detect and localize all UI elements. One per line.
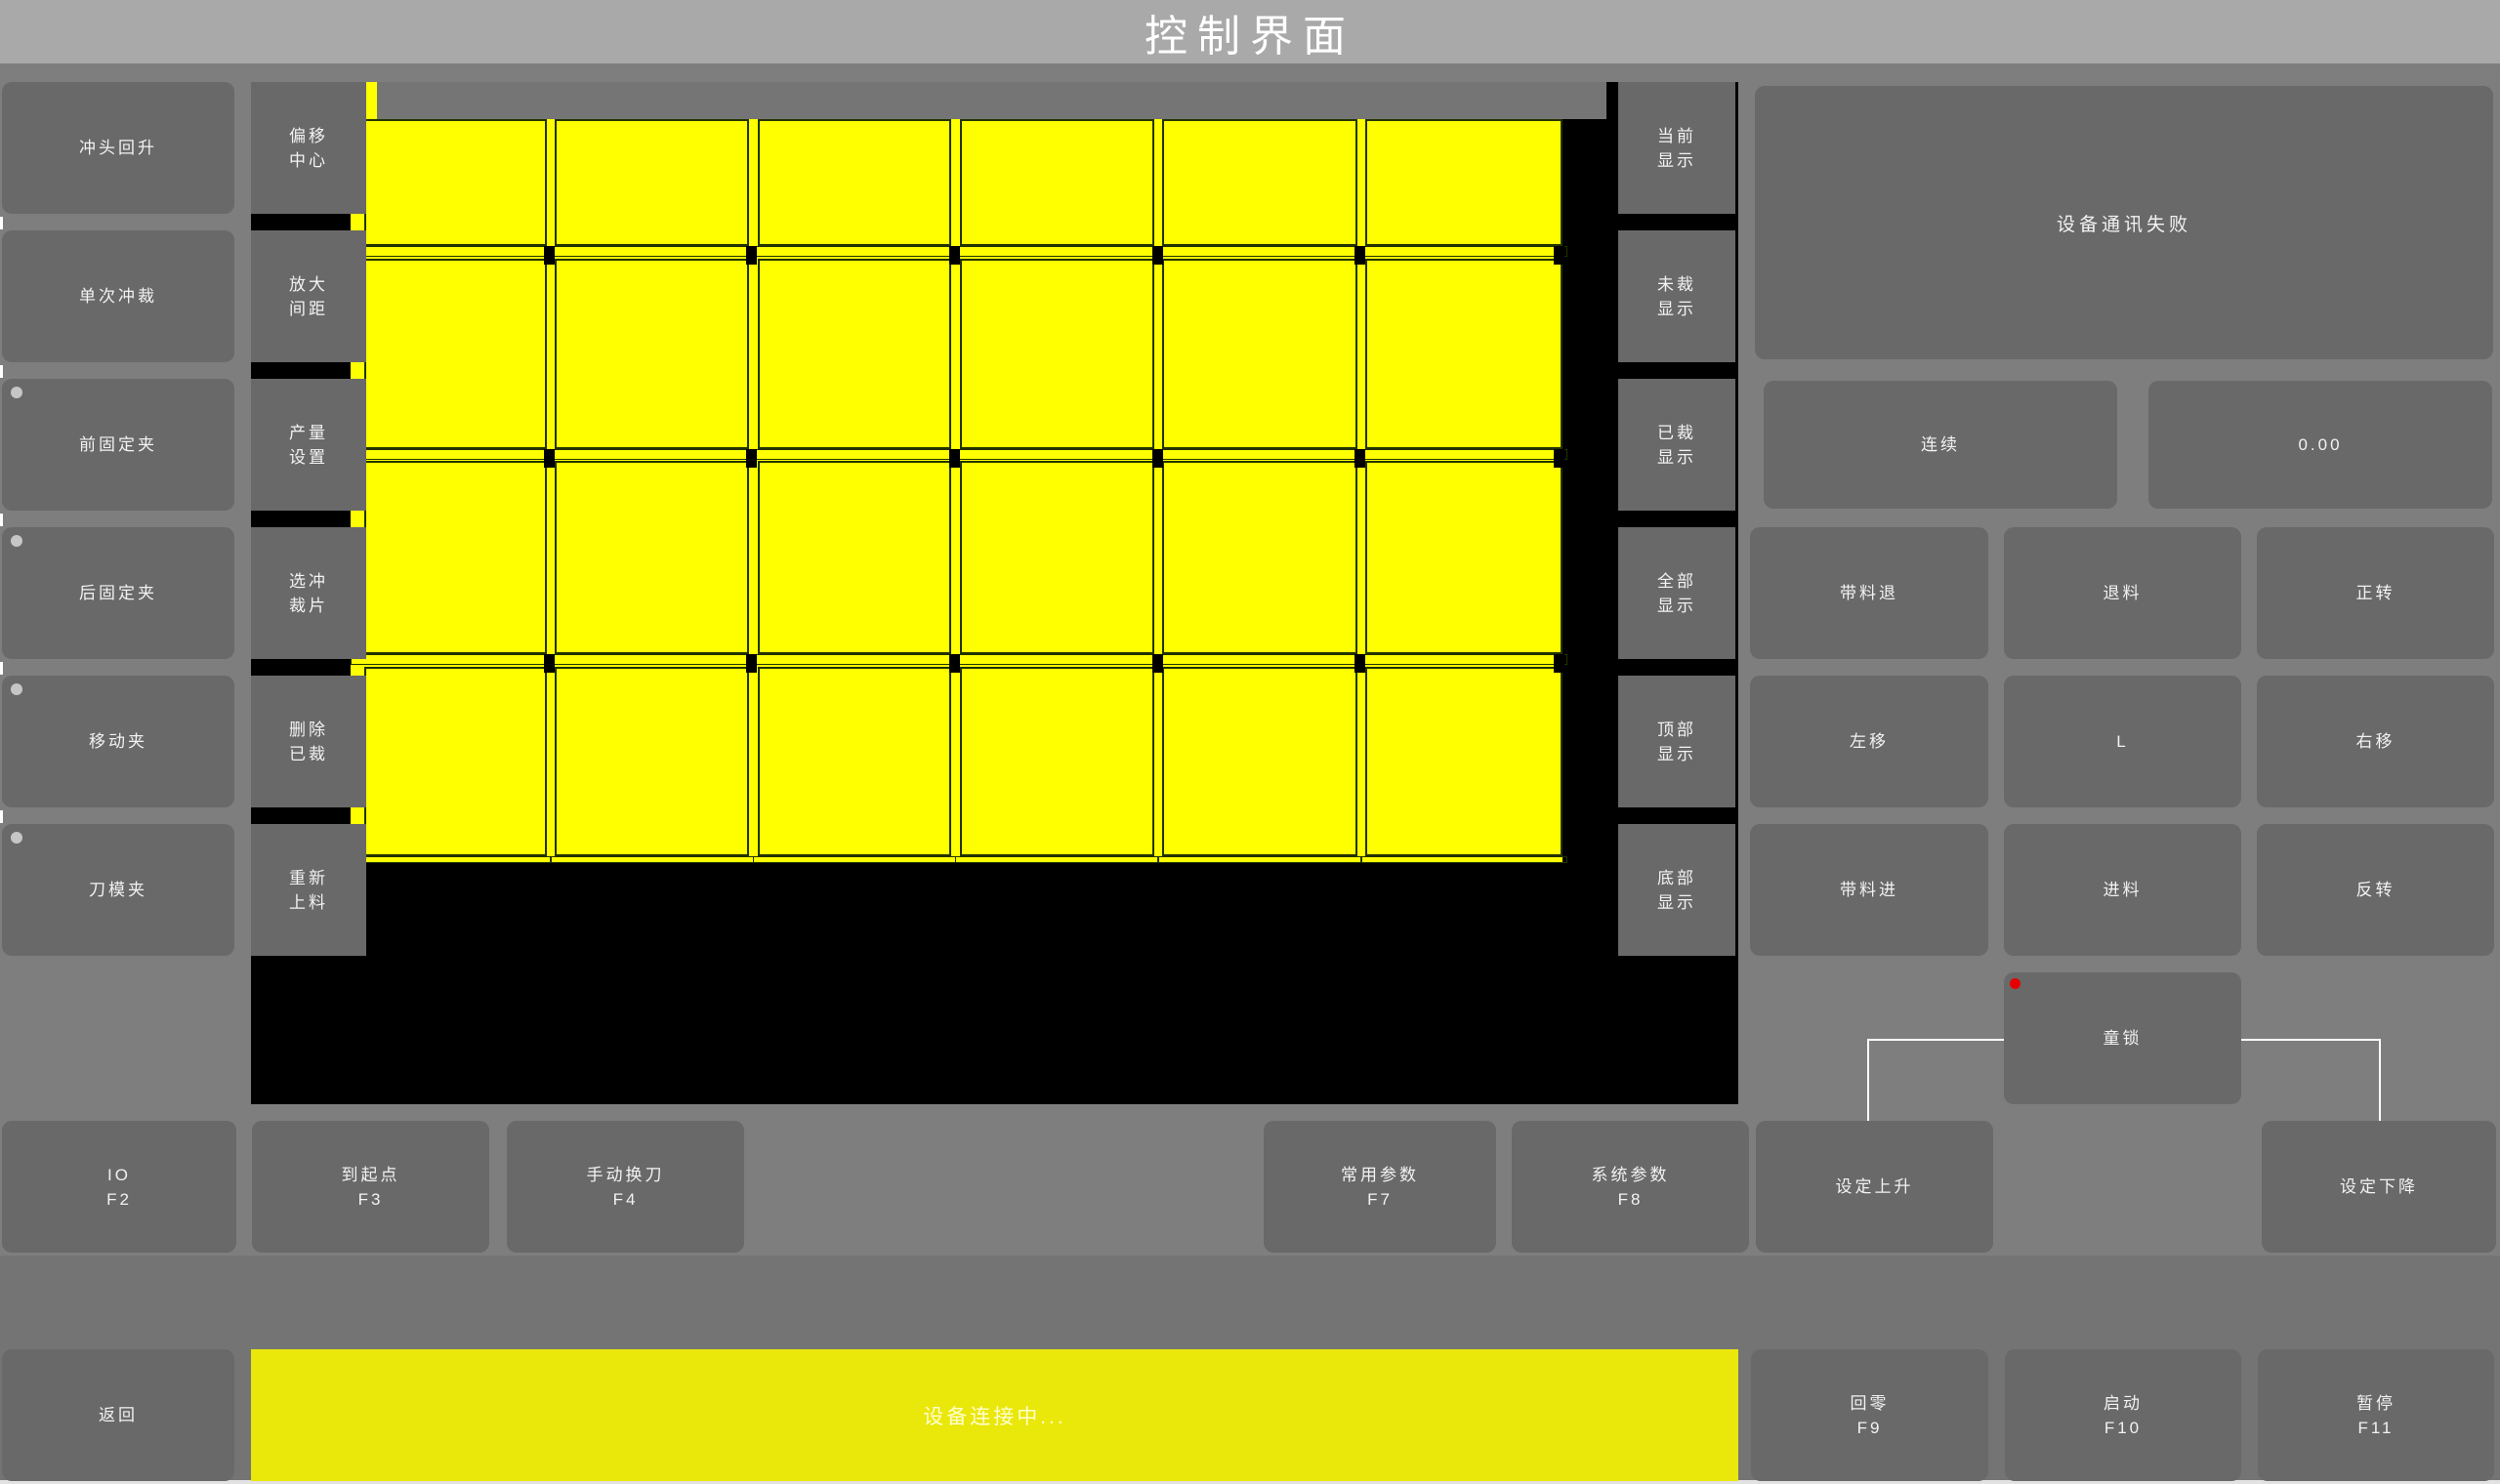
junction-notch bbox=[544, 246, 555, 265]
cut-piece bbox=[758, 461, 951, 654]
button-label: 设置 bbox=[289, 445, 328, 470]
button-label: L bbox=[2116, 729, 2128, 754]
button-label: 设定上升 bbox=[1836, 1175, 1914, 1199]
button-label: 常用参数 bbox=[1341, 1163, 1419, 1187]
delete-cut-button[interactable]: 删除 已裁 bbox=[251, 676, 366, 807]
red-state-dot-icon bbox=[2010, 978, 2021, 989]
cut-piece bbox=[1162, 259, 1357, 449]
divider-strip bbox=[550, 856, 754, 863]
divider-strip bbox=[955, 246, 1159, 257]
divider-strip bbox=[1157, 654, 1362, 665]
junction-notch bbox=[1354, 654, 1365, 673]
state-dot-icon bbox=[11, 832, 22, 844]
divider-strip bbox=[753, 856, 956, 863]
button-label: 当前 bbox=[1657, 124, 1696, 148]
single-punch-button[interactable]: 单次冲裁 bbox=[2, 230, 234, 362]
cut-piece bbox=[960, 119, 1154, 246]
button-label: 设定下降 bbox=[2340, 1175, 2418, 1199]
go-origin-f3-button[interactable]: 到起点 F3 bbox=[252, 1121, 489, 1253]
junction-notch bbox=[1554, 654, 1564, 673]
button-label: 童锁 bbox=[2104, 1026, 2143, 1051]
divider-strip bbox=[550, 654, 754, 665]
common-params-f7-button[interactable]: 常用参数 F7 bbox=[1264, 1121, 1496, 1253]
status-text: 设备连接中... bbox=[923, 1401, 1066, 1430]
divider-strip bbox=[1360, 654, 1567, 665]
button-label: 显示 bbox=[1657, 445, 1696, 470]
button-label: 中心 bbox=[289, 148, 328, 173]
junction-notch bbox=[746, 654, 757, 673]
edge-tick bbox=[0, 217, 3, 229]
button-label: 反转 bbox=[2356, 878, 2396, 902]
control-interface-screen: 控制界面 冲头回升 单次冲裁 前固定夹 后固定夹 移动夹 刀模夹 偏移 中心 放… bbox=[0, 0, 2500, 1484]
divider-strip bbox=[351, 449, 552, 460]
divider-strip bbox=[753, 449, 956, 460]
rear-clamp-button[interactable]: 后固定夹 bbox=[2, 527, 234, 659]
button-label: 显示 bbox=[1657, 594, 1696, 618]
show-cut-button[interactable]: 已裁 显示 bbox=[1618, 379, 1735, 511]
divider-strip bbox=[351, 856, 552, 863]
cut-piece bbox=[555, 259, 749, 449]
button-label: 底部 bbox=[1657, 866, 1696, 890]
fkey-label: F8 bbox=[1618, 1187, 1644, 1212]
button-label: 未裁 bbox=[1657, 272, 1696, 297]
cut-piece bbox=[1365, 119, 1562, 246]
show-uncut-button[interactable]: 未裁 显示 bbox=[1618, 230, 1735, 362]
cut-piece bbox=[555, 119, 749, 246]
cut-piece bbox=[1365, 259, 1562, 449]
button-label: 后固定夹 bbox=[79, 581, 157, 605]
button-label: 回零 bbox=[1851, 1391, 1890, 1416]
front-clamp-button[interactable]: 前固定夹 bbox=[2, 379, 234, 511]
moving-clamp-button[interactable]: 移动夹 bbox=[2, 676, 234, 807]
cut-piece bbox=[1162, 461, 1357, 654]
show-all-button[interactable]: 全部 显示 bbox=[1618, 527, 1735, 659]
divider-strip bbox=[1360, 856, 1567, 863]
cut-piece bbox=[555, 461, 749, 654]
button-label: 移动夹 bbox=[89, 729, 147, 754]
device-status-message: 设备通讯失败 bbox=[1755, 86, 2493, 359]
l-button[interactable]: L bbox=[2004, 676, 2241, 807]
divider-strip bbox=[550, 246, 754, 257]
junction-notch bbox=[746, 449, 757, 468]
fkey-label: F2 bbox=[106, 1187, 132, 1212]
button-label: 已裁 bbox=[289, 742, 328, 766]
divider-strip bbox=[351, 246, 552, 257]
sheet-top-strip bbox=[377, 82, 1606, 119]
set-raise-button[interactable]: 设定上升 bbox=[1756, 1121, 1993, 1253]
value-text: 0.00 bbox=[2298, 433, 2342, 457]
show-top-button[interactable]: 顶部 显示 bbox=[1618, 676, 1735, 807]
reverse-rotate-button[interactable]: 反转 bbox=[2257, 824, 2494, 956]
cut-piece bbox=[364, 667, 547, 856]
edge-tick bbox=[0, 662, 3, 675]
state-dot-icon bbox=[11, 387, 22, 398]
button-label: 产量 bbox=[289, 421, 328, 445]
cutting-layout-canvas[interactable] bbox=[251, 82, 1738, 1104]
cut-piece bbox=[364, 259, 547, 449]
home-f9-button[interactable]: 回零 F9 bbox=[1751, 1349, 1988, 1481]
button-label: 带料进 bbox=[1840, 878, 1898, 902]
divider-strip bbox=[753, 246, 956, 257]
button-label: 偏移 bbox=[289, 124, 328, 148]
header-bar: 控制界面 bbox=[0, 0, 2500, 63]
junction-notch bbox=[949, 654, 960, 673]
button-label: 进料 bbox=[2104, 878, 2143, 902]
fkey-label: F3 bbox=[358, 1187, 384, 1212]
cut-piece bbox=[1365, 667, 1562, 856]
back-button[interactable]: 返回 bbox=[2, 1349, 234, 1481]
fkey-label: F9 bbox=[1857, 1416, 1883, 1440]
cut-piece bbox=[1162, 667, 1357, 856]
system-params-f8-button[interactable]: 系统参数 F8 bbox=[1512, 1121, 1749, 1253]
divider-strip bbox=[351, 654, 552, 665]
divider-strip bbox=[550, 449, 754, 460]
button-label: 手动换刀 bbox=[587, 1163, 665, 1187]
divider-strip bbox=[1360, 449, 1567, 460]
page-title: 控制界面 bbox=[1145, 1, 1355, 63]
fkey-label: F10 bbox=[2104, 1416, 2142, 1440]
divider-strip bbox=[1157, 246, 1362, 257]
cut-piece bbox=[960, 461, 1154, 654]
cut-piece bbox=[1162, 119, 1357, 246]
state-dot-icon bbox=[11, 683, 22, 695]
divider-strip bbox=[1157, 449, 1362, 460]
tape-feed-button[interactable]: 带料进 bbox=[1750, 824, 1988, 956]
button-label: 间距 bbox=[289, 297, 328, 321]
edge-tick bbox=[0, 514, 3, 526]
button-label: 冲头回升 bbox=[79, 136, 157, 160]
button-label: 显示 bbox=[1657, 890, 1696, 915]
button-label: 返回 bbox=[99, 1403, 138, 1427]
junction-notch bbox=[1354, 246, 1365, 265]
junction-notch bbox=[544, 449, 555, 468]
junction-notch bbox=[1152, 246, 1163, 265]
divider-strip bbox=[955, 449, 1159, 460]
manual-tool-change-f4-button[interactable]: 手动换刀 F4 bbox=[507, 1121, 744, 1253]
offset-center-button[interactable]: 偏移 中心 bbox=[251, 82, 366, 214]
show-bottom-button[interactable]: 底部 显示 bbox=[1618, 824, 1735, 956]
junction-notch bbox=[746, 246, 757, 265]
button-label: 前固定夹 bbox=[79, 433, 157, 457]
button-label: 顶部 bbox=[1657, 718, 1696, 742]
junction-notch bbox=[1354, 449, 1365, 468]
value-display-field[interactable]: 0.00 bbox=[2148, 381, 2492, 509]
cut-piece bbox=[364, 119, 547, 246]
cut-piece bbox=[960, 259, 1154, 449]
material-back-button[interactable]: 退料 bbox=[2004, 527, 2241, 659]
punch-raise-button[interactable]: 冲头回升 bbox=[2, 82, 234, 214]
fkey-label: F11 bbox=[2357, 1416, 2394, 1440]
output-settings-button[interactable]: 产量 设置 bbox=[251, 379, 366, 511]
button-label: 已裁 bbox=[1657, 421, 1696, 445]
move-left-button[interactable]: 左移 bbox=[1750, 676, 1988, 807]
message-text: 设备通讯失败 bbox=[2057, 210, 2191, 236]
forward-rotate-button[interactable]: 正转 bbox=[2257, 527, 2494, 659]
tape-retract-button[interactable]: 带料退 bbox=[1750, 527, 1988, 659]
button-label: 左移 bbox=[1850, 729, 1889, 754]
enlarge-spacing-button[interactable]: 放大 间距 bbox=[251, 230, 366, 362]
button-label: 显示 bbox=[1657, 297, 1696, 321]
button-label: 全部 bbox=[1657, 569, 1696, 594]
select-piece-button[interactable]: 选冲 裁片 bbox=[251, 527, 366, 659]
child-lock-button[interactable]: 童锁 bbox=[2004, 972, 2241, 1104]
cut-piece bbox=[758, 119, 951, 246]
junction-notch bbox=[1152, 654, 1163, 673]
button-label: 退料 bbox=[2104, 581, 2143, 605]
button-label: 启动 bbox=[2104, 1391, 2143, 1416]
button-label: 连续 bbox=[1921, 433, 1960, 457]
button-label: 显示 bbox=[1657, 148, 1696, 173]
button-label: 单次冲裁 bbox=[79, 284, 157, 309]
junction-notch bbox=[1554, 449, 1564, 468]
button-label: 带料退 bbox=[1840, 581, 1898, 605]
show-current-button[interactable]: 当前 显示 bbox=[1618, 82, 1735, 214]
divider-strip bbox=[955, 654, 1159, 665]
divider-strip bbox=[955, 856, 1159, 863]
button-label: 刀模夹 bbox=[89, 878, 147, 902]
junction-notch bbox=[949, 449, 960, 468]
button-label: 到起点 bbox=[342, 1163, 400, 1187]
button-label: 删除 bbox=[289, 718, 328, 742]
divider-strip bbox=[1157, 856, 1362, 863]
button-label: 选冲 bbox=[289, 569, 328, 594]
button-label: 显示 bbox=[1657, 742, 1696, 766]
edge-tick bbox=[0, 810, 3, 823]
junction-notch bbox=[1152, 449, 1163, 468]
die-clamp-button[interactable]: 刀模夹 bbox=[2, 824, 234, 956]
cut-piece bbox=[960, 667, 1154, 856]
connection-status-bar: 设备连接中... bbox=[251, 1349, 1738, 1481]
button-label: 上料 bbox=[289, 890, 328, 915]
button-label: 右移 bbox=[2356, 729, 2396, 754]
edge-tick bbox=[0, 365, 3, 378]
cut-piece bbox=[758, 259, 951, 449]
fkey-label: F4 bbox=[613, 1187, 639, 1212]
fkey-label: F7 bbox=[1367, 1187, 1393, 1212]
button-label: 系统参数 bbox=[1592, 1163, 1670, 1187]
button-label: 正转 bbox=[2356, 581, 2396, 605]
junction-notch bbox=[1554, 246, 1564, 265]
cut-piece bbox=[364, 461, 547, 654]
state-dot-icon bbox=[11, 535, 22, 547]
divider-strip bbox=[753, 654, 956, 665]
cut-piece bbox=[555, 667, 749, 856]
button-label: 暂停 bbox=[2356, 1391, 2396, 1416]
move-right-button[interactable]: 右移 bbox=[2257, 676, 2494, 807]
junction-notch bbox=[949, 246, 960, 265]
material-feed-button[interactable]: 进料 bbox=[2004, 824, 2241, 956]
button-label: 重新 bbox=[289, 866, 328, 890]
junction-notch bbox=[544, 654, 555, 673]
set-lower-button[interactable]: 设定下降 bbox=[2262, 1121, 2496, 1253]
continuous-mode-button[interactable]: 连续 bbox=[1764, 381, 2117, 509]
divider-strip bbox=[1360, 246, 1567, 257]
io-f2-button[interactable]: IO F2 bbox=[2, 1121, 236, 1253]
cut-piece bbox=[758, 667, 951, 856]
button-label: IO bbox=[107, 1163, 131, 1187]
button-label: 放大 bbox=[289, 272, 328, 297]
start-f10-button[interactable]: 启动 F10 bbox=[2005, 1349, 2241, 1481]
cut-piece bbox=[1365, 461, 1562, 654]
button-label: 裁片 bbox=[289, 594, 328, 618]
reload-material-button[interactable]: 重新 上料 bbox=[251, 824, 366, 956]
pause-f11-button[interactable]: 暂停 F11 bbox=[2258, 1349, 2494, 1481]
